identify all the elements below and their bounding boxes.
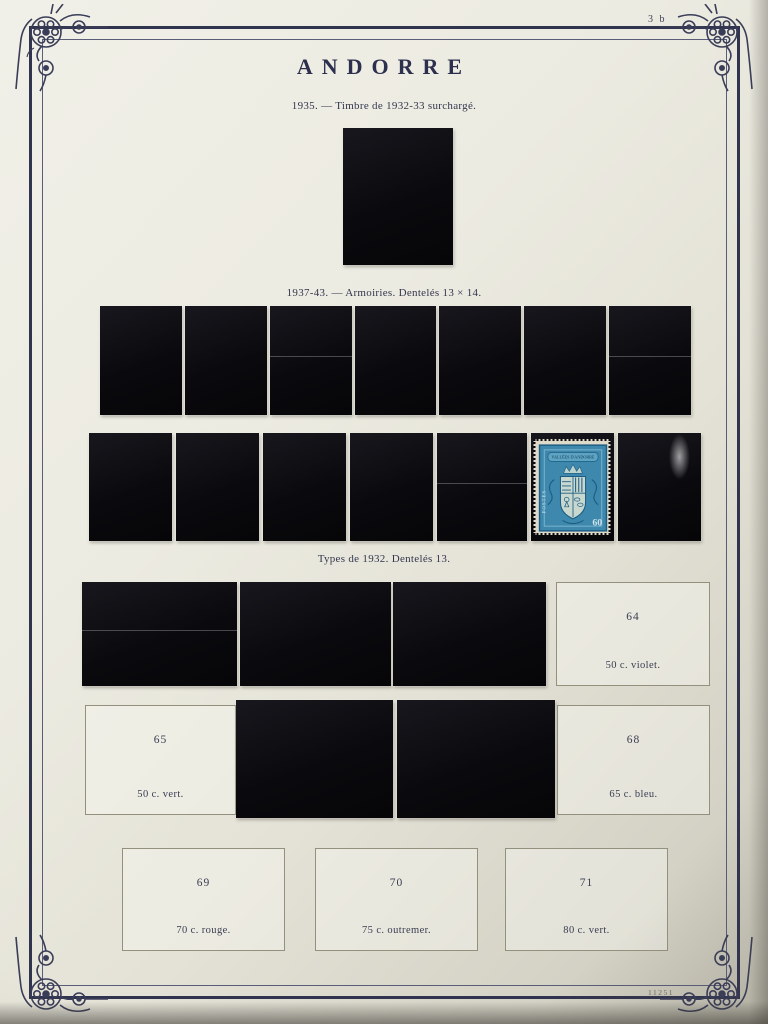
- corner-ornament-icon: [658, 4, 762, 108]
- stamp-mount: [185, 306, 267, 415]
- stamp-value-text: 60: [593, 518, 603, 529]
- stamp-mount: [439, 306, 521, 415]
- frame-caption: 50 c. violet.: [606, 660, 661, 671]
- frame-number: 68: [627, 734, 641, 746]
- stamp-mount: [397, 700, 555, 818]
- frame-number: 69: [197, 877, 211, 889]
- stamp-mount: [100, 306, 182, 415]
- stamp-mount: [393, 582, 546, 686]
- stamp-mount: [618, 433, 701, 541]
- corner-ornament-icon: [658, 918, 762, 1022]
- stamp-mount: [355, 306, 437, 415]
- empty-frame-71: 71 80 c. vert.: [505, 848, 668, 951]
- frame-number: 70: [390, 877, 404, 889]
- corner-ornament-icon: [6, 4, 110, 108]
- section-caption-types-1932: Types de 1932. Dentelés 13.: [0, 553, 768, 565]
- frame-number: 64: [626, 611, 640, 623]
- stamp-mount: [609, 306, 691, 415]
- empty-frame-64: 64 50 c. violet.: [556, 582, 710, 686]
- stamp-banner-text: VALLÉES D'ANDORRE: [552, 455, 595, 460]
- empty-frame-70: 70 75 c. outremer.: [315, 848, 478, 951]
- frame-number: 65: [154, 734, 168, 746]
- stamp-mount: [524, 306, 606, 415]
- empty-frame-65: 65 50 c. vert.: [85, 705, 236, 815]
- stamp-mount: [236, 700, 393, 818]
- stamp-mount: [176, 433, 259, 541]
- section-caption-1935: 1935. — Timbre de 1932-33 surchargé.: [0, 100, 768, 112]
- stamp-mount: [437, 433, 527, 541]
- album-page: 3 b 11251 ANDORRE 1935. — Timbre de 1932…: [0, 0, 768, 1024]
- stamp-60c-blue: VALLÉES D'ANDORRE 60: [534, 439, 611, 535]
- mount-row-armoiries-1: [100, 306, 691, 415]
- mount-row-armoiries-2: VALLÉES D'ANDORRE 60: [89, 433, 701, 541]
- stamp-mount: [270, 306, 352, 415]
- stamp-mount: [263, 433, 346, 541]
- frame-caption: 80 c. vert.: [563, 925, 609, 936]
- frame-caption: 75 c. outremer.: [362, 925, 431, 936]
- page-number: 3 b: [648, 14, 667, 25]
- stamp-mount: [82, 582, 237, 686]
- frame-caption: 50 c. vert.: [137, 789, 183, 800]
- stamp-mount: [240, 582, 391, 686]
- stamp-side-label: POSTES: [543, 490, 548, 513]
- frame-caption: 65 c. bleu.: [609, 789, 657, 800]
- stamp-mount: [89, 433, 172, 541]
- album-page-photo: 3 b 11251 ANDORRE 1935. — Timbre de 1932…: [0, 0, 768, 1024]
- empty-frame-68: 68 65 c. bleu.: [557, 705, 710, 815]
- empty-frame-69: 69 70 c. rouge.: [122, 848, 285, 951]
- page-title: ANDORRE: [0, 54, 768, 80]
- frame-caption: 70 c. rouge.: [176, 925, 230, 936]
- stamp-mount: [350, 433, 433, 541]
- frame-number: 71: [580, 877, 594, 889]
- stamp-mount-with-stamp: VALLÉES D'ANDORRE 60: [531, 433, 614, 541]
- section-caption-1937-43: 1937-43. — Armoiries. Dentelés 13 × 14.: [0, 287, 768, 299]
- stamp-artwork: VALLÉES D'ANDORRE 60: [539, 444, 608, 532]
- plate-number: 11251: [648, 988, 674, 997]
- stamp-mount: [343, 128, 453, 265]
- corner-ornament-icon: [6, 918, 110, 1022]
